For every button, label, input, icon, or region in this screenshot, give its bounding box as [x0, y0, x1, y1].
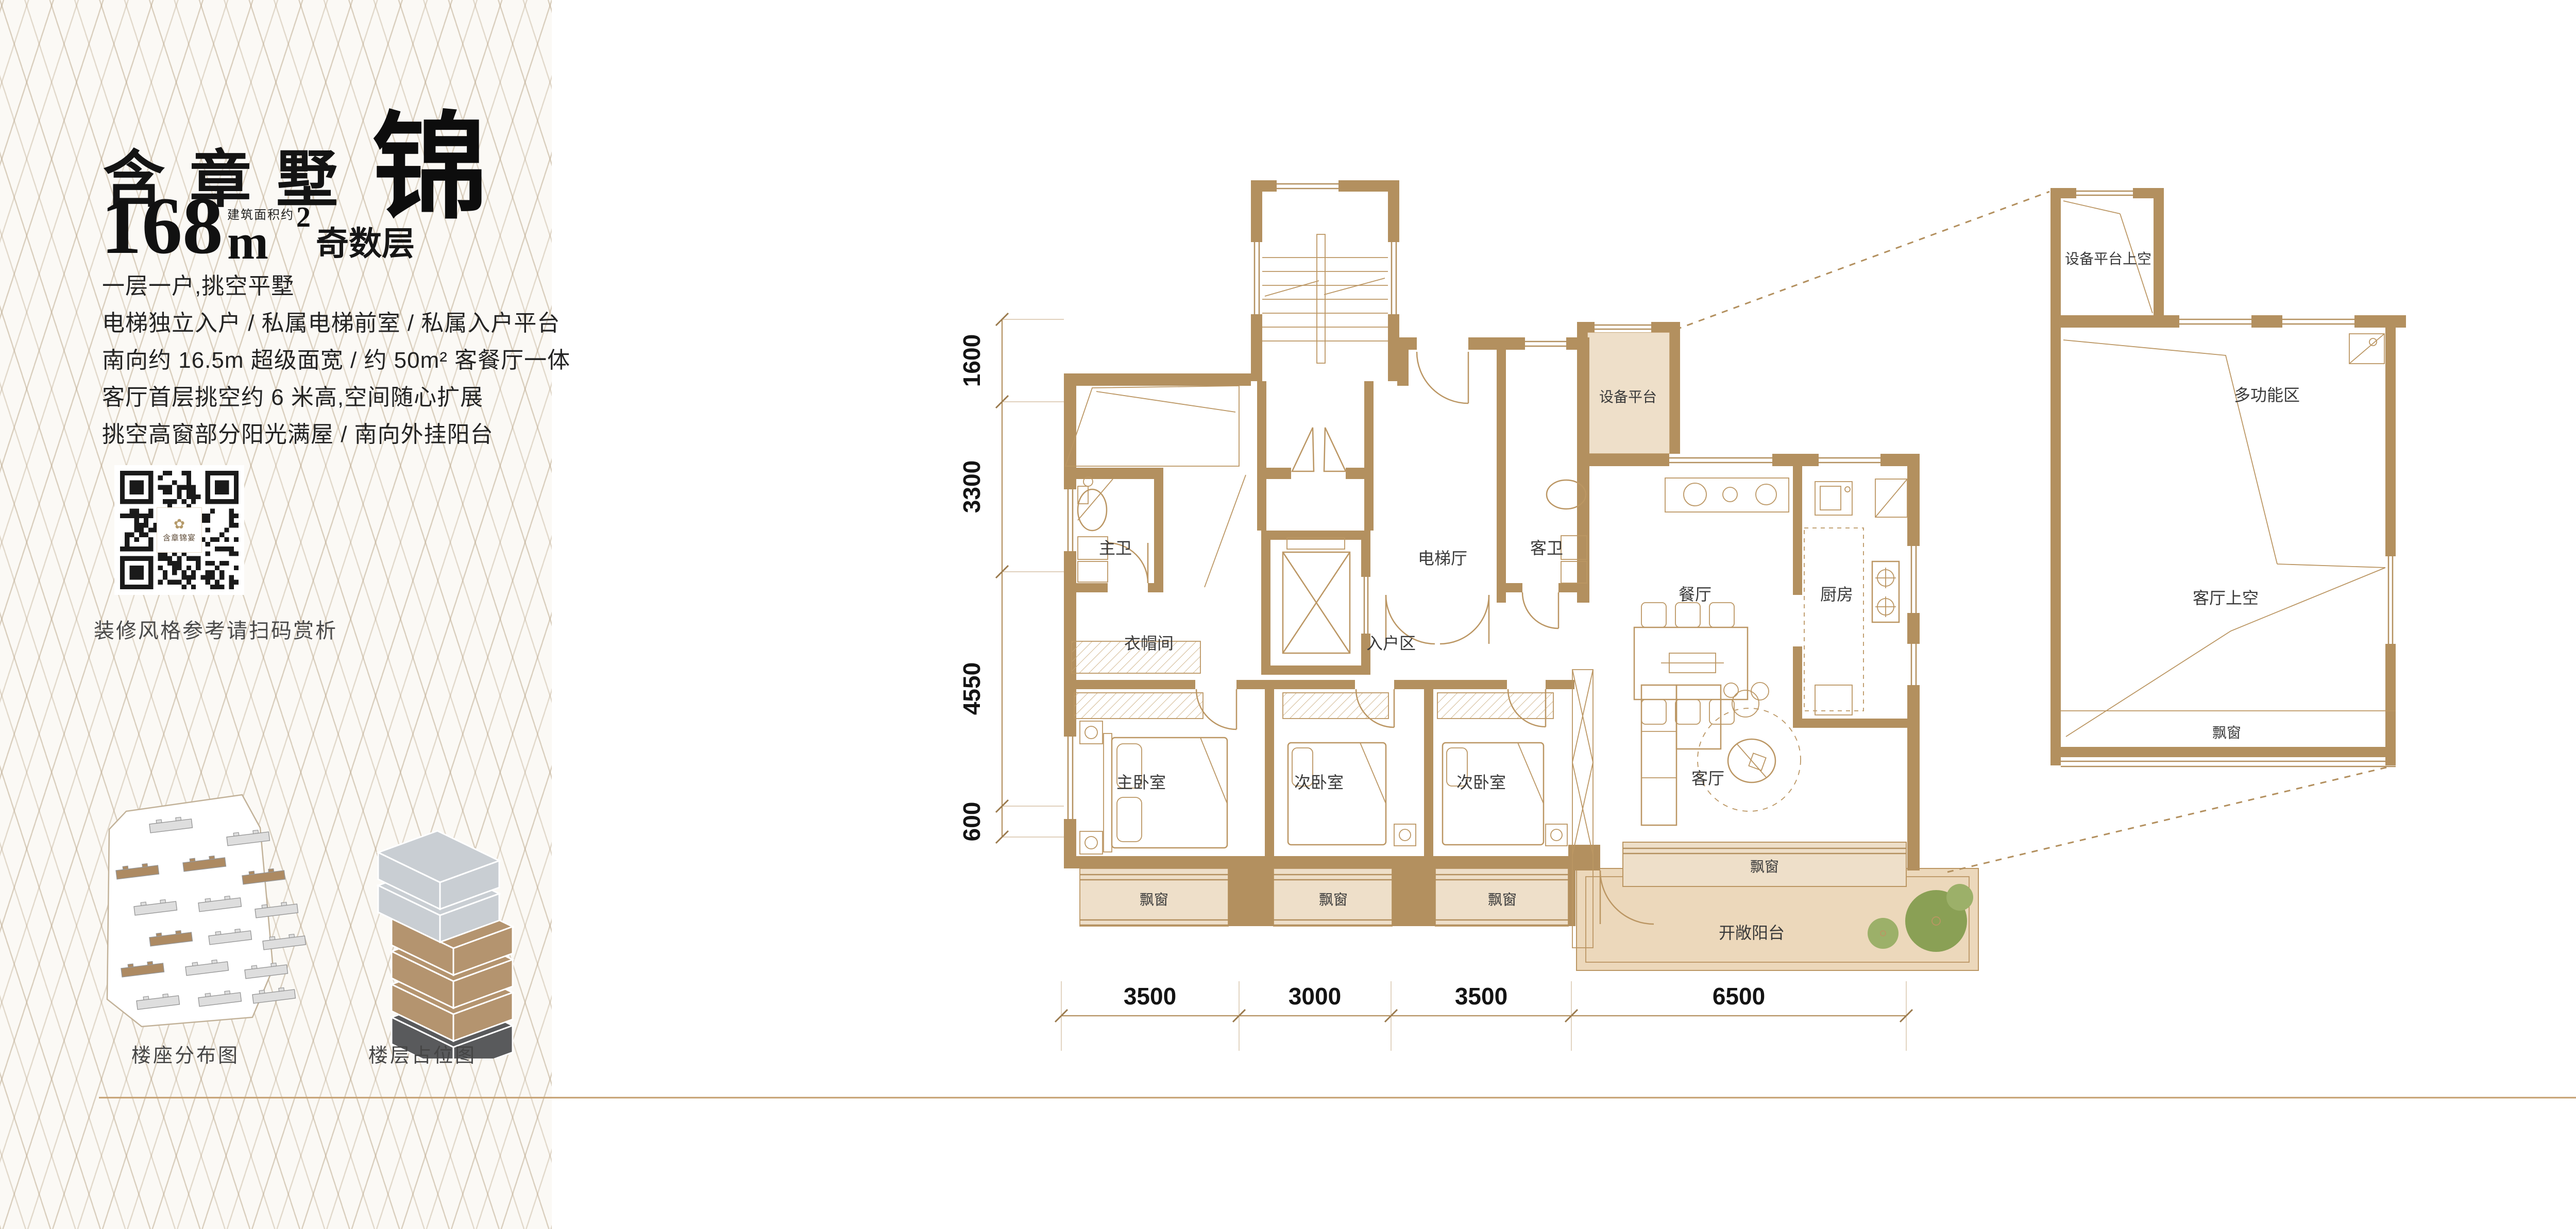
label-bay-window: 飘窗 — [1488, 892, 1517, 908]
plan-walls — [1064, 180, 1920, 926]
label-living: 客厅 — [1691, 769, 1724, 788]
dimension-left: 1600 3300 4550 600 — [958, 313, 1064, 843]
dim-6500: 6500 — [1713, 983, 1765, 1010]
dim-3500b: 3500 — [1455, 983, 1507, 1010]
label-bay-window: 飘窗 — [1750, 859, 1779, 875]
leader-lines — [1675, 192, 2391, 872]
dim-3300: 3300 — [958, 460, 985, 513]
dim-3500: 3500 — [1124, 983, 1176, 1010]
bed-second-2 — [1443, 743, 1567, 846]
floor-plan-canvas: 设备平台 主卫 电梯厅 客卫 餐厅 厨房 衣帽间 入户区 主卧室 次卧室 次卧室… — [0, 0, 2576, 1229]
dim-600: 600 — [958, 802, 985, 842]
plan-openings — [1064, 180, 1920, 819]
label-second-bedroom: 次卧室 — [1456, 773, 1506, 792]
label-master-bath: 主卫 — [1099, 539, 1132, 557]
label-bay-window: 飘窗 — [1140, 892, 1168, 908]
label-second-bedroom: 次卧室 — [1294, 773, 1344, 792]
detail-plan: 设备平台上空 多功能区 客厅上空 飘窗 — [2050, 188, 2406, 766]
label-entry-zone: 入户区 — [1366, 634, 1416, 653]
label-equipment-platform: 设备平台 — [1599, 389, 1657, 405]
label-detail-bay-window: 飘窗 — [2212, 725, 2241, 741]
label-equipment-above: 设备平台上空 — [2065, 251, 2151, 267]
label-multi-function: 多功能区 — [2234, 386, 2300, 404]
bed-second-1 — [1288, 743, 1416, 846]
label-guest-bath: 客卫 — [1530, 539, 1563, 557]
label-cloakroom: 衣帽间 — [1124, 634, 1174, 653]
dim-3000: 3000 — [1289, 983, 1341, 1010]
dim-4550: 4550 — [958, 662, 985, 715]
label-dining: 餐厅 — [1679, 585, 1711, 604]
dimension-bottom: 3500 3000 3500 6500 — [1055, 981, 1912, 1051]
gift-area-fills — [1080, 332, 1978, 970]
label-elevator-hall: 电梯厅 — [1418, 549, 1467, 568]
label-bay-window: 飘窗 — [1319, 892, 1348, 908]
label-open-balcony: 开敞阳台 — [1719, 924, 1785, 942]
dim-1600: 1600 — [958, 334, 985, 387]
label-living-above: 客厅上空 — [2193, 589, 2259, 607]
label-kitchen: 厨房 — [1820, 585, 1853, 604]
label-master-bedroom: 主卧室 — [1116, 773, 1166, 792]
